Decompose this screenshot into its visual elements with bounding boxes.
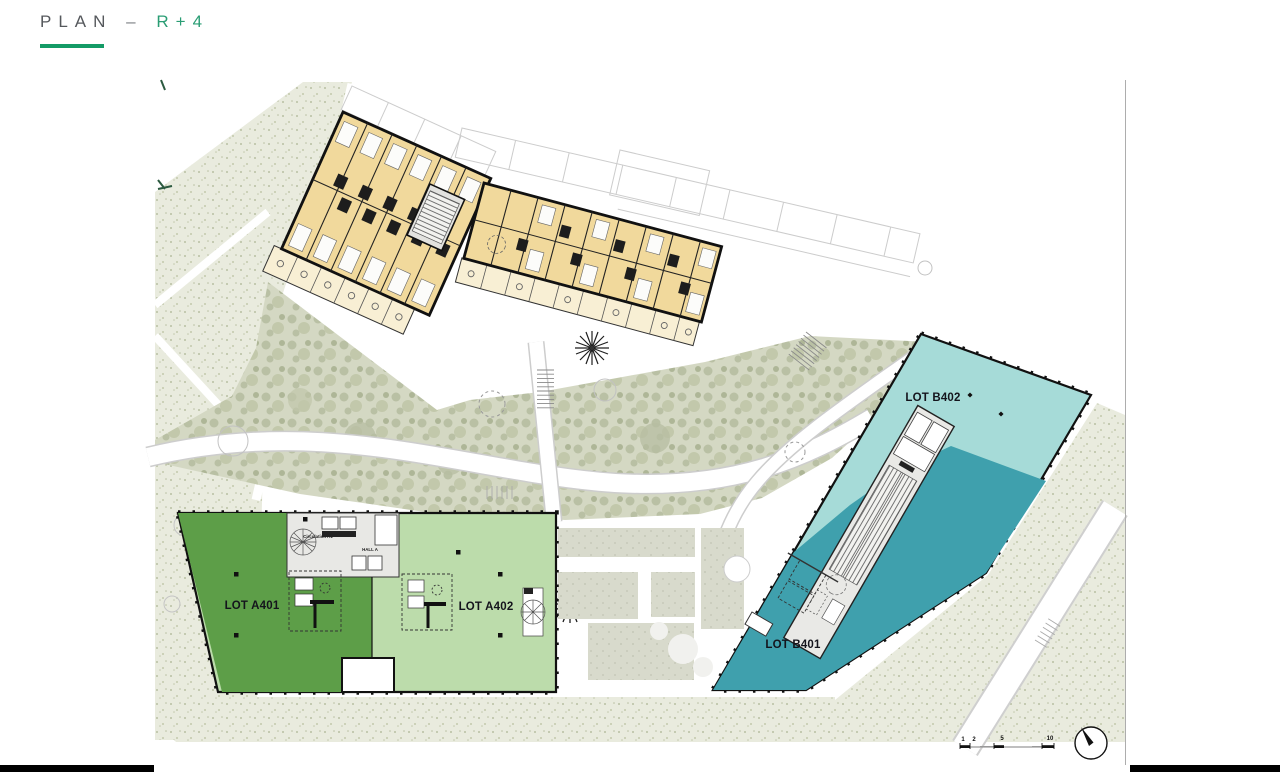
entrance-a — [342, 658, 394, 692]
core-a-circulation-label: Circulation A1 — [303, 534, 333, 539]
north-indicator — [1075, 727, 1107, 759]
lot-a402-label: LOT A402 — [459, 601, 514, 613]
building-residential — [263, 109, 722, 346]
site-plan: Circulation A1 HALL A — [0, 0, 1280, 772]
presentation-slide: PLAN – R+4 — [0, 0, 1280, 772]
scale-tick-10: 10 — [1047, 736, 1054, 742]
lot-b402-label: LOT B402 — [905, 392, 960, 404]
building-a401-a402: Circulation A1 HALL A — [178, 513, 556, 692]
lot-b401-label: LOT B401 — [765, 639, 821, 651]
boundary-marks — [158, 80, 172, 189]
footer-bar-right — [1130, 765, 1280, 772]
stair-a402 — [521, 588, 545, 636]
palm-tree-icon — [575, 331, 609, 365]
core-a-hall-label: HALL A — [362, 547, 379, 552]
core-a: Circulation A1 HALL A — [287, 513, 399, 577]
footer-bar-left — [0, 765, 154, 772]
lot-a401-label: LOT A401 — [225, 600, 280, 612]
